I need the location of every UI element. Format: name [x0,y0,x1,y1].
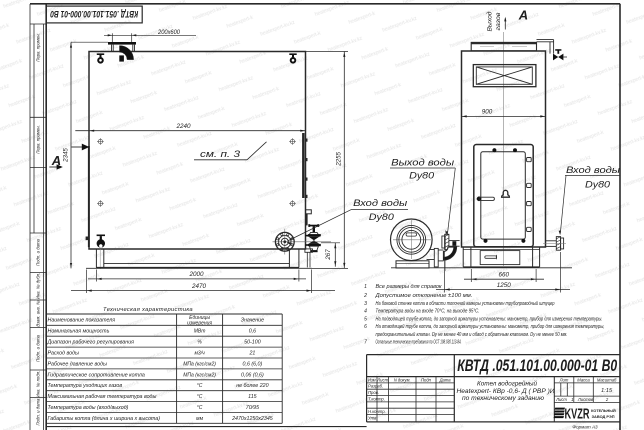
svg-text:Котел водогрейный: Котел водогрейный [477,380,537,388]
svg-text:5: 5 [364,317,367,323]
svg-text:Лист: Лист [555,397,567,402]
svg-text:0,6 (6,0): 0,6 (6,0) [243,361,263,367]
svg-text:Максимальная рабочая температу: Максимальная рабочая температура воды [48,394,157,400]
svg-text:КВТД .051.101.00.000-01 В0: КВТД .051.101.00.000-01 В0 [457,356,617,375]
svg-text:6: 6 [364,324,367,330]
svg-text:KVZR: KVZR [565,405,590,422]
svg-text:МПа (кгс/см2): МПа (кгс/см2) [183,361,216,367]
svg-text:Пров.: Пров. [368,390,379,395]
svg-text:Листов: Листов [577,397,594,402]
svg-text:Перв. примен.: Перв. примен. [36,125,41,154]
svg-text:1: 1 [571,397,573,402]
svg-text:°С: °С [197,394,203,400]
svg-text:70/95: 70/95 [246,405,259,411]
svg-text:мм: мм [196,416,203,422]
svg-text:Значение: Значение [241,318,264,324]
svg-text:Масштаб: Масштаб [597,377,617,382]
svg-text:МВт: МВт [194,329,206,335]
svg-text:Лит: Лит [559,377,569,382]
svg-text:Гидравлическое сопротивление к: Гидравлическое сопротивление котла [48,372,145,378]
svg-text:Подп. и дата: Подп. и дата [36,398,41,426]
svg-text:660: 660 [498,271,509,278]
svg-text:ЗАВОД РЭП: ЗАВОД РЭП [592,414,615,419]
svg-text:Выход: Выход [485,11,493,31]
svg-text:предохранительный клапан. Dу н: предохранительный клапан. Dу не менее 40… [376,331,568,338]
svg-text:0,6: 0,6 [249,329,256,335]
svg-text:Масса: Масса [577,377,590,382]
svg-text:по техническому заданию: по техническому заданию [462,394,544,402]
svg-text:200х600: 200х600 [157,29,180,36]
svg-text:м3/ч: м3/ч [195,350,206,356]
svg-text:газов: газов [495,12,502,30]
svg-text:2240: 2240 [175,123,191,130]
svg-text:Изм: Изм [368,377,376,382]
svg-text:МПа (кгс/см2): МПа (кгс/см2) [183,372,216,378]
svg-text:Инв. № дубл.: Инв. № дубл. [36,273,41,299]
svg-text:Инв. № подл.: Инв. № подл. [36,371,41,398]
svg-text:21: 21 [248,350,255,356]
svg-text:не более 220: не более 220 [236,383,268,389]
svg-text:Рабочее давление воды: Рабочее давление воды [48,361,107,367]
svg-text:0,06 (0,6): 0,06 (0,6) [241,372,264,378]
svg-text:2255: 2255 [335,151,342,166]
svg-text:На отводящей трубе котла, до з: На отводящей трубе котла, до запорной ар… [376,323,605,330]
svg-text:%: % [197,340,202,346]
svg-text:1: 1 [364,284,367,290]
svg-text:Техническая характеристика: Техническая характеристика [103,307,193,313]
svg-text:267: 267 [325,249,332,261]
svg-text:Все размеры для справок: Все размеры для справок [376,284,443,290]
svg-text:50-100: 50-100 [244,340,261,346]
svg-text:7: 7 [364,340,367,346]
svg-text:2470х1250х2345: 2470х1250х2345 [231,416,273,422]
svg-text:Диапазон рабочего регулировани: Диапазон рабочего регулирования [47,340,135,346]
svg-text:Температура воды (вход/выход): Температура воды (вход/выход) [48,405,129,411]
svg-text:1:15: 1:15 [601,388,613,394]
svg-text:4: 4 [364,309,367,315]
svg-text:Дата: Дата [439,377,452,382]
svg-text:Н.контр.: Н.контр. [368,409,386,414]
svg-text:N докум.: N докум. [394,377,411,382]
svg-text:Heatexpert- КВр -0,6- Д ( РВР: Heatexpert- КВр -0,6- Д ( РВР )И [457,388,555,395]
svg-text:900: 900 [482,109,493,116]
svg-text:Вход воды: Вход воды [353,198,408,208]
svg-text:Лист: Лист [376,377,388,382]
svg-text:Температура воды на входе 70°: Температура воды на входе 70°С, на выход… [376,309,480,315]
svg-text:115: 115 [248,394,256,400]
svg-text:Выход воды: Выход воды [391,157,455,167]
svg-text:На боковой стенке котла в обла: На боковой стенке котла в области топочн… [376,300,555,307]
svg-text:Температура уходящих газов: Температура уходящих газов [48,383,123,389]
svg-text:Номинальная мощность: Номинальная мощность [48,329,110,335]
svg-text:Габариты котла (длина х ширина: Габариты котла (длина х ширина х высота) [48,416,161,422]
svg-text:Перв. примен.: Перв. примен. [36,33,41,62]
svg-text:2: 2 [363,293,367,299]
svg-text:Допустимое отклонение ±100 мм: Допустимое отклонение ±100 мм. [374,293,472,299]
svg-text:2470: 2470 [191,283,207,290]
svg-text:3: 3 [364,301,367,307]
svg-text:КВТД .051.101.00.000-01 В0: КВТД .051.101.00.000-01 В0 [50,8,138,19]
svg-text:Взам. инв. №: Взам. инв. № [36,300,41,327]
svg-text:Подп. и дата: Подп. и дата [36,334,41,362]
svg-text:°С: °С [197,383,203,389]
svg-text:Т.контр.: Т.контр. [368,396,385,401]
svg-text:измерения: измерения [187,320,212,326]
svg-text:2345: 2345 [63,148,70,163]
svg-text:Формат А3: Формат А3 [572,424,598,429]
svg-text:см. п. 3: см. п. 3 [200,149,241,160]
svg-text:Разраб.: Разраб. [368,384,383,389]
svg-text:Подп. и дата: Подп. и дата [36,238,41,266]
svg-text:На подводящей трубе котла, до: На подводящей трубе котла, до запорной а… [376,316,603,323]
svg-text:Dy80: Dy80 [585,180,610,190]
svg-text:А: А [518,8,528,23]
svg-text:Подп: Подп [421,377,432,382]
svg-text:Dy80: Dy80 [409,170,434,180]
svg-text:°С: °С [197,405,203,411]
svg-text:КОТЕЛЬНЫЙ: КОТЕЛЬНЫЙ [591,408,616,413]
svg-text:1250: 1250 [497,282,512,289]
svg-text:2000: 2000 [188,271,204,278]
svg-text:Остальные технические требован: Остальные технические требования по ОСТ … [376,340,462,346]
svg-text:Утв.: Утв. [368,415,378,420]
svg-text:Dy80: Dy80 [369,212,394,222]
svg-text:Вход воды: Вход воды [566,165,621,175]
svg-text:Расход воды: Расход воды [48,350,79,356]
svg-text:Наименование показателя: Наименование показателя [48,318,116,324]
